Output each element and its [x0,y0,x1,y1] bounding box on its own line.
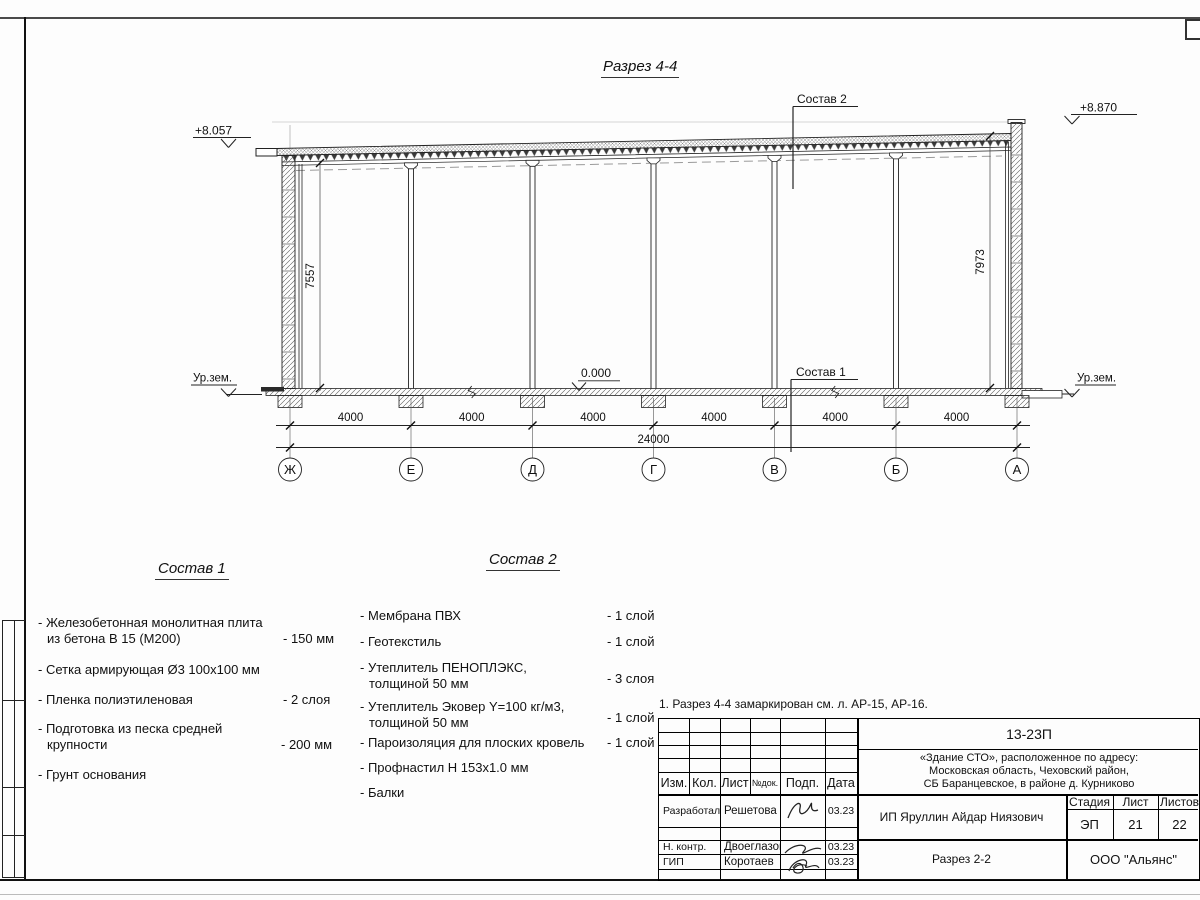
role-gip: ГИП [659,854,720,869]
role-nkontr: Н. контр. [659,840,720,854]
col-ndok: №док. [750,772,780,794]
bay-dim-label: 4000 [580,412,606,424]
material-item: - Сетка армирующая Ø3 100х100 мм [38,662,260,678]
svg-text:Ур.зем.: Ур.зем. [193,373,232,385]
date-nkontr: 03.23 [825,840,857,854]
total-dimension-line: 24000 [276,434,1030,452]
doc-number: 13-23П [857,719,1200,749]
sostav1-title: Состав 1 [155,560,229,580]
material-value: - 1 слой [607,710,655,726]
bay-dim-label: 4000 [459,412,485,424]
material-item: - Утеплитель Эковер Y=100 кг/м3,толщиной… [360,699,564,730]
material-value: - 3 слоя [607,671,654,687]
axis-label: Ж [284,462,296,477]
material-value: - 200 мм [281,737,332,753]
material-value: - 1 слой [607,735,655,751]
zero-level-mark: 0.000 [572,366,620,391]
bay-dim-label: 4000 [822,412,848,424]
material-value: - 150 мм [283,631,334,647]
axis-label: Е [407,462,416,477]
roof-assembly [256,120,1025,171]
material-item: - Балки [360,785,404,801]
signature-nkontr-gip [781,841,825,878]
axis-bubbles: Ж Е Д Г В Б А [279,458,1029,481]
sheets-value: 22 [1158,809,1200,839]
left-cornice-box [256,149,277,157]
svg-text:7973: 7973 [975,249,987,275]
ground-level-mark-left: Ур.зем. [191,373,237,397]
height-dimension-left: 7557 [305,159,324,392]
paper-edge-line [0,894,1200,895]
date-razrabotal: 03.23 [825,794,857,827]
leader-sostav1: Состав 1 [791,365,858,452]
section-drawing: 4000 4000 4000 4000 4000 4000 24000 Ж Е … [0,0,1200,520]
stage-value: ЭП [1066,809,1113,839]
bay-dim-label: 4000 [338,412,364,424]
material-item: - Подготовка из песка среднейкрупности [38,721,222,752]
stage-label: Стадия [1066,794,1113,809]
title-block: Изм. Кол. Лист №док. Подп. Дата Разработ… [658,718,1200,881]
axis-label: А [1013,462,1022,477]
date-gip: 03.23 [825,854,857,869]
svg-text:+8.057: +8.057 [195,124,232,138]
drawing-sheet: Разрез 4-4 [0,0,1200,900]
name-nkontr: Двоеглазов [720,840,780,854]
client-name: ИП Яруллин Айдар Ниязович [857,794,1066,839]
ground-level-mark-right: Ур.зем. [1065,373,1117,398]
svg-text:0.000: 0.000 [581,366,611,380]
material-item: - Пароизоляция для плоских кровель [360,735,584,751]
material-item: - Профнастил Н 153х1.0 мм [360,760,529,776]
axis-label: Г [650,462,657,477]
sostav2-title: Состав 2 [486,551,560,571]
col-izm: Изм. [659,772,689,794]
company-name: ООО "Альянс" [1066,839,1200,879]
svg-text:Состав 2: Состав 2 [797,92,847,106]
axis-label: Д [528,462,537,477]
sheet-label: Лист [1113,794,1158,809]
material-value: - 1 слой [607,634,655,650]
svg-text:+8.870: +8.870 [1080,101,1117,115]
total-dim-label: 24000 [638,434,670,446]
role-razrabotal: Разработал [659,794,720,827]
sheet-note: 1. Разрез 4-4 замаркирован см. л. АР-15,… [659,697,928,711]
material-item: - Утеплитель ПЕНОПЛЭКС,толщиной 50 мм [360,660,527,691]
material-item: - Пленка полиэтиленовая [38,692,193,708]
col-list: Лист [720,772,750,794]
name-gip: Коротаев [720,854,780,869]
sheet-drawing-title: Разрез 2-2 [857,839,1066,879]
svg-text:Состав 1: Состав 1 [796,365,846,379]
material-value: - 1 слой [607,608,655,624]
col-kol: Кол. [689,772,720,794]
axis-label: Б [892,462,901,477]
bay-dimension-line: 4000 4000 4000 4000 4000 4000 [276,412,1030,430]
svg-text:Ур.зем.: Ур.зем. [1077,373,1116,385]
bay-dim-label: 4000 [701,412,727,424]
material-value: - 2 слоя [283,692,330,708]
height-dimension-right: 7973 [975,132,994,392]
material-item: - Железобетонная монолитная плитаиз бето… [38,615,263,646]
svg-text:7557: 7557 [305,263,317,289]
sheet-value: 21 [1113,809,1158,839]
col-podp: Подп. [780,772,825,794]
columns [405,153,903,389]
left-wall [282,156,302,389]
material-item: - Грунт основания [38,767,146,783]
col-data: Дата [825,772,857,794]
elevation-mark-left: +8.057 [193,124,251,148]
material-item: - Геотекстиль [360,634,441,650]
axis-label: В [770,462,779,477]
right-wall [1006,123,1023,389]
signature-razrabotal [781,795,825,826]
name-razrabotal: Решетова [720,794,780,827]
elevation-mark-right: +8.870 [1065,101,1138,125]
project-description: «Здание СТО», расположенное по адресу: М… [857,749,1200,794]
material-item: - Мембрана ПВХ [360,608,461,624]
sheets-label: Листов [1158,794,1200,809]
bay-dim-label: 4000 [944,412,970,424]
